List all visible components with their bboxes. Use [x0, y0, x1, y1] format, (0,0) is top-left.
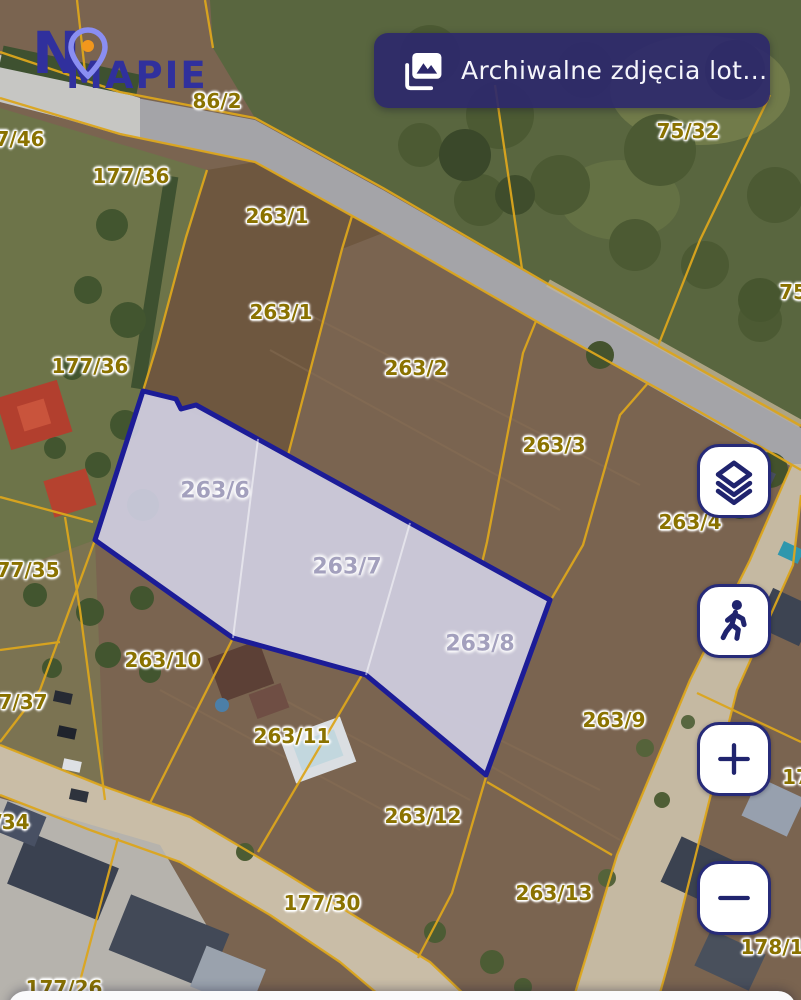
plus-icon — [708, 733, 760, 785]
map-app: 86/275/32757/46177/36263/1263/1177/36263… — [0, 0, 801, 1000]
map-pin-icon — [66, 26, 110, 90]
minus-icon — [708, 872, 760, 924]
zoom-in-button[interactable] — [697, 722, 771, 796]
archive-photos-label: Archiwalne zdjęcia lot... — [461, 56, 767, 85]
app-logo[interactable]: N MAPIE — [30, 24, 210, 104]
photo-archive-icon — [396, 46, 444, 96]
street-view-button[interactable] — [697, 584, 771, 658]
pedestrian-icon — [708, 595, 760, 647]
archive-photos-button[interactable]: Archiwalne zdjęcia lot... — [374, 33, 770, 108]
map-canvas[interactable] — [0, 0, 801, 1000]
zoom-out-button[interactable] — [697, 861, 771, 935]
layers-button[interactable] — [697, 444, 771, 518]
bottom-sheet[interactable] — [8, 991, 796, 1000]
layers-icon — [708, 455, 760, 507]
